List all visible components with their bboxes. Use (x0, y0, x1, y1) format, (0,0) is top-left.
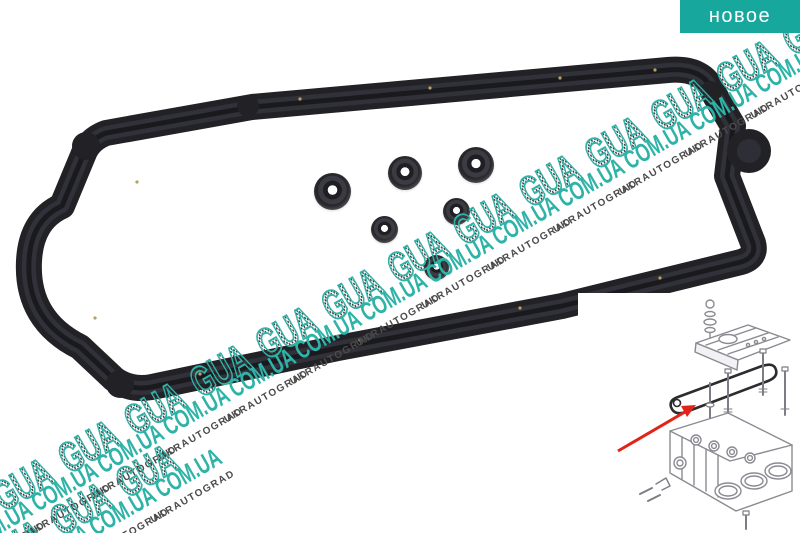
rubber-bolt-seal (458, 147, 494, 183)
rubber-bolt-seal (314, 173, 351, 210)
assembly-diagram (578, 293, 800, 533)
rubber-bolt-seal (424, 255, 449, 280)
product-image: GUACOM.UAUKRAUTOGRADGUACOM.UAUKRAUTOGRAD… (0, 0, 800, 533)
cylinder-head-diagram (578, 293, 800, 533)
fastener-stack (704, 300, 716, 339)
rubber-bolt-seal (443, 198, 470, 225)
rubber-bolt-seal (388, 156, 422, 190)
rubber-bolt-seal (371, 216, 398, 243)
cylinder-head-drawing (670, 413, 792, 511)
new-badge: новое (680, 0, 800, 33)
